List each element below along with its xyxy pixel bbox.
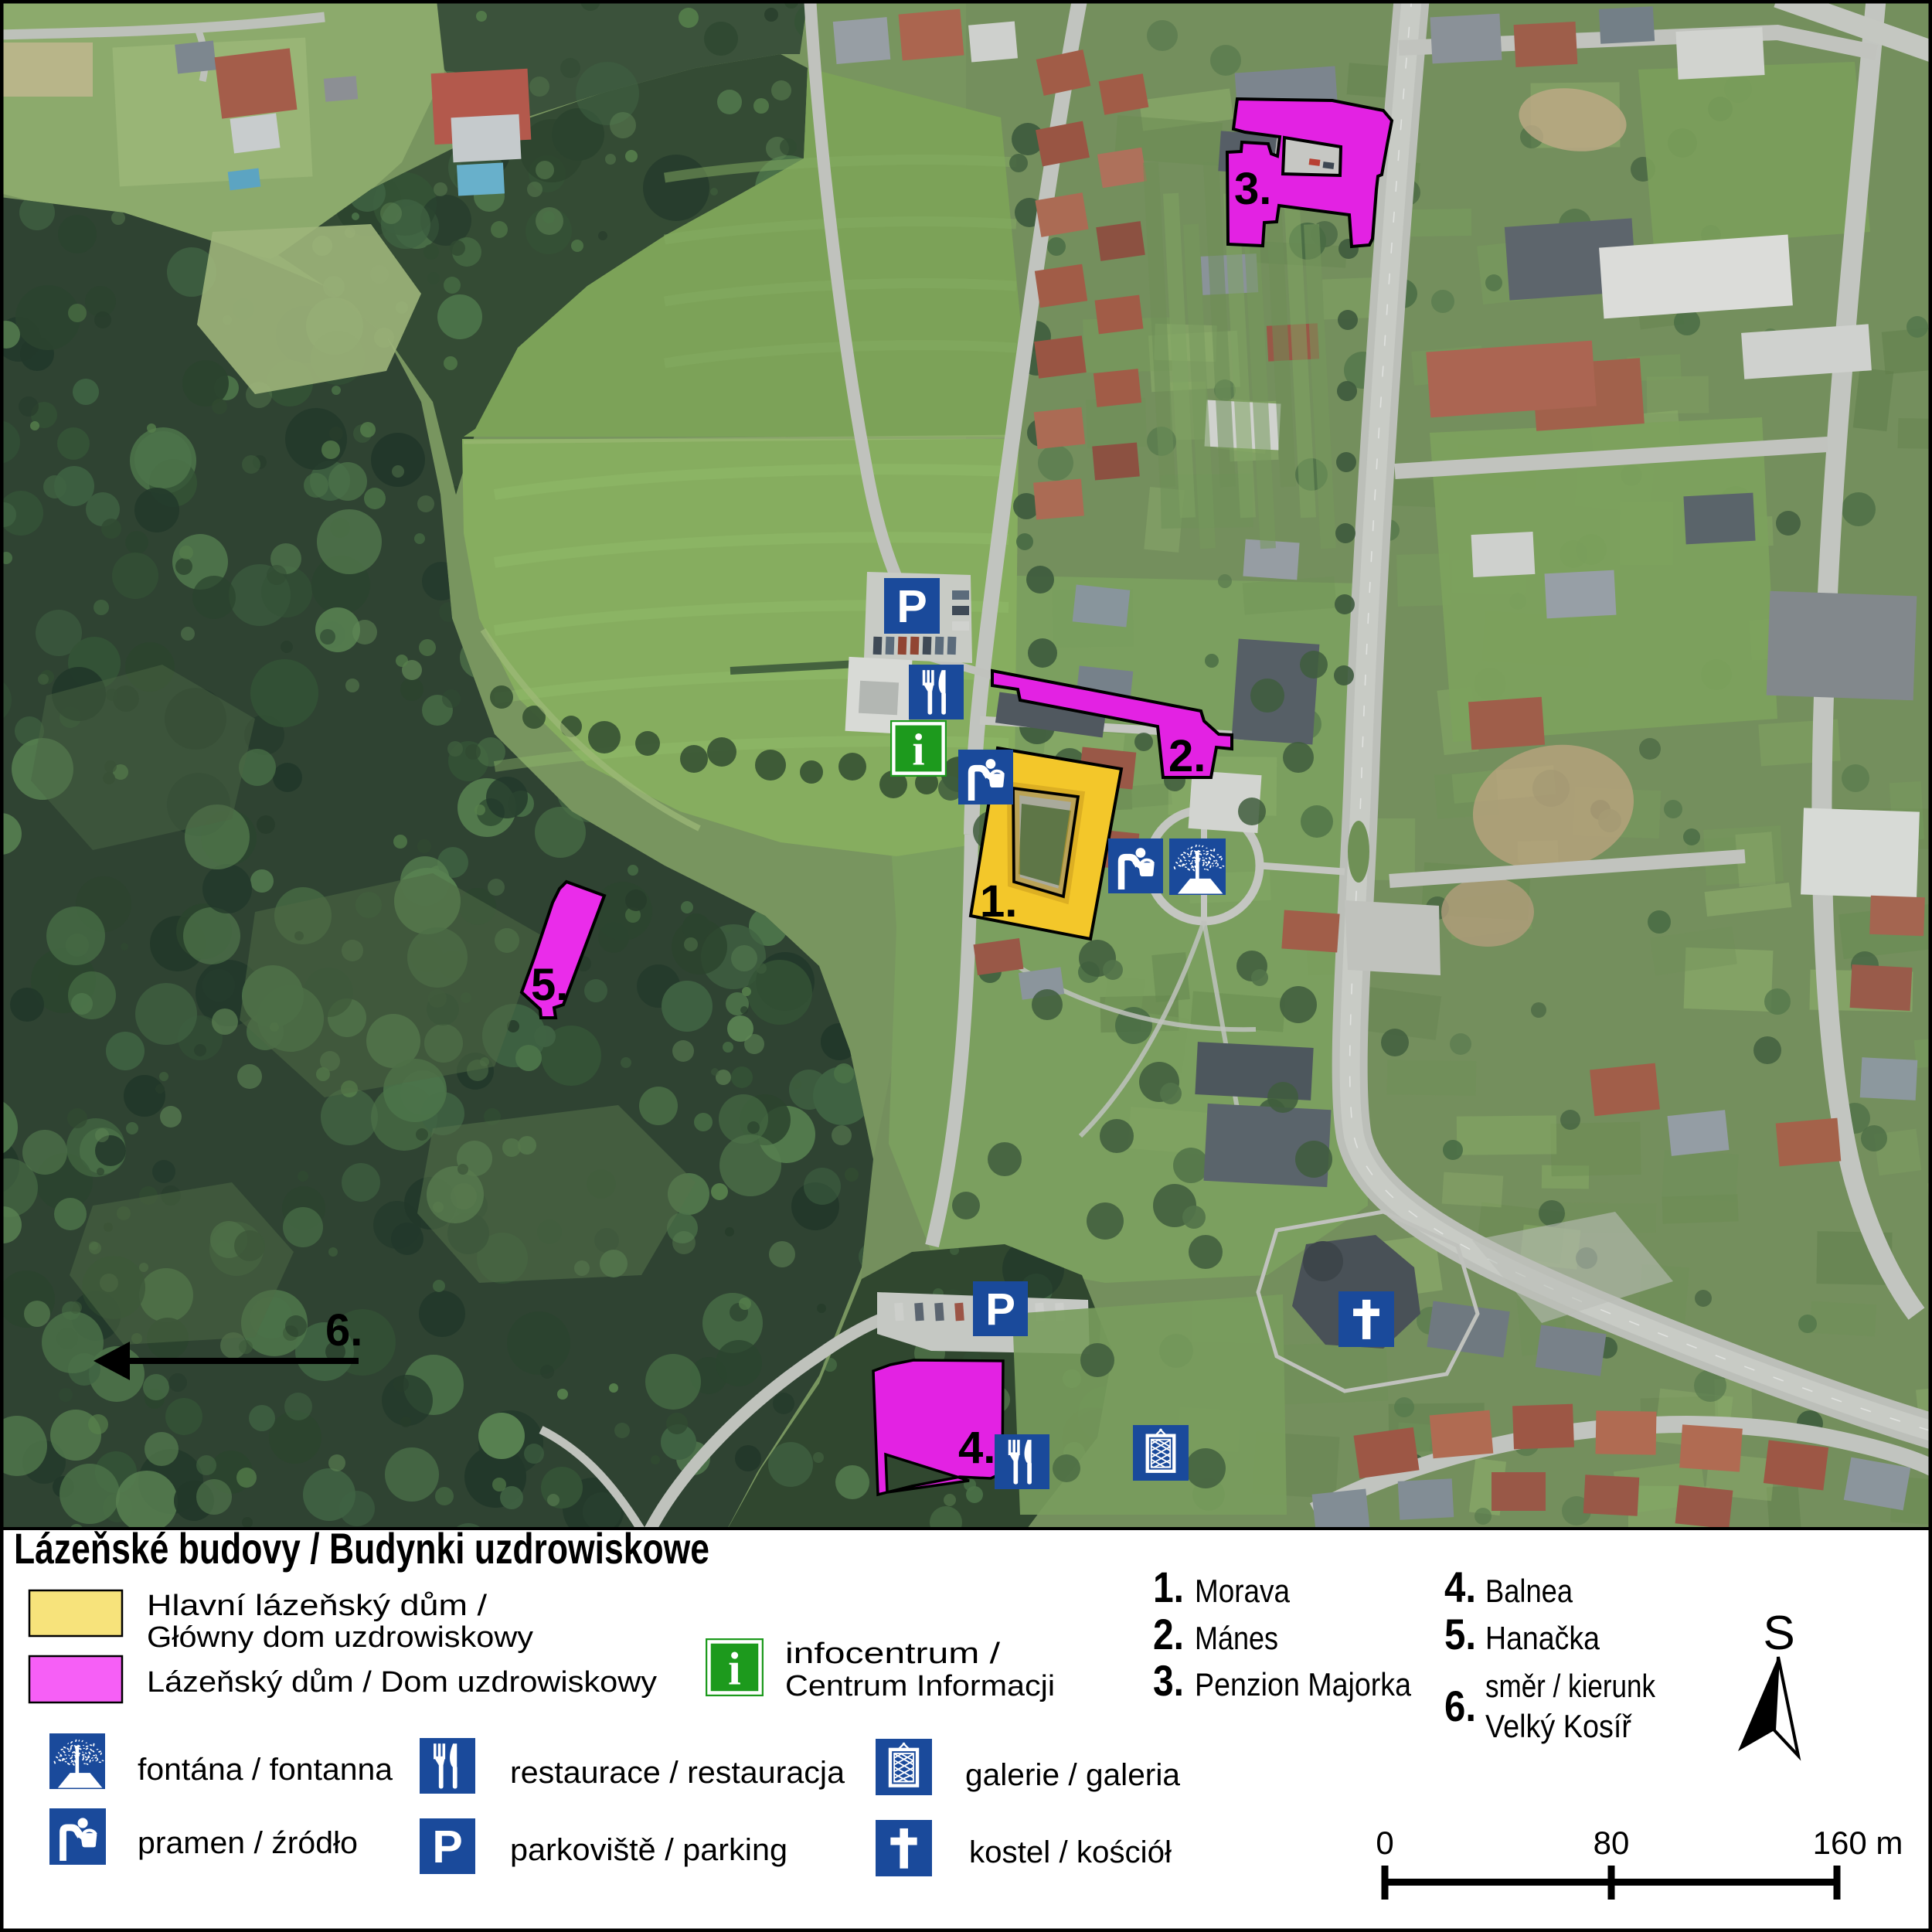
- svg-text:Centrum Informacji: Centrum Informacji: [785, 1670, 1055, 1702]
- svg-text:3.: 3.: [1153, 1656, 1184, 1705]
- svg-text:1.: 1.: [980, 876, 1017, 927]
- svg-text:4.: 4.: [958, 1423, 995, 1473]
- svg-text:parkoviště / parking: parkoviště / parking: [510, 1833, 787, 1867]
- svg-text:6.: 6.: [325, 1305, 362, 1355]
- svg-text:0: 0: [1376, 1825, 1393, 1861]
- svg-text:restaurace / restauracja: restaurace / restauracja: [510, 1756, 845, 1790]
- svg-text:Velký Kosíř: Velký Kosíř: [1485, 1708, 1632, 1744]
- svg-text:Penzion Majorka: Penzion Majorka: [1195, 1666, 1412, 1702]
- svg-text:4.: 4.: [1444, 1563, 1476, 1611]
- svg-text:Lázeňský dům / Dom uzdrowiskow: Lázeňský dům / Dom uzdrowiskowy: [147, 1666, 657, 1699]
- svg-text:5.: 5.: [531, 960, 568, 1010]
- svg-text:160 m: 160 m: [1813, 1825, 1903, 1861]
- svg-text:5.: 5.: [1444, 1610, 1476, 1658]
- svg-text:fontána / fontanna: fontána / fontanna: [138, 1753, 393, 1787]
- svg-text:Morava: Morava: [1195, 1573, 1291, 1609]
- svg-text:6.: 6.: [1444, 1682, 1476, 1730]
- svg-text:Lázeňské budovy / Budynki uzdr: Lázeňské budovy / Budynki uzdrowiskowe: [14, 1524, 709, 1573]
- svg-text:Hanačka: Hanačka: [1485, 1620, 1600, 1656]
- svg-text:Główny dom uzdrowiskowy: Główny dom uzdrowiskowy: [147, 1621, 533, 1654]
- svg-text:Mánes: Mánes: [1195, 1620, 1278, 1656]
- svg-text:směr / kierunk: směr / kierunk: [1485, 1668, 1656, 1704]
- svg-text:2.: 2.: [1153, 1610, 1184, 1658]
- svg-text:1.: 1.: [1153, 1563, 1184, 1611]
- svg-text:kostel / kościół: kostel / kościół: [969, 1835, 1172, 1869]
- svg-text:galerie / galeria: galerie / galeria: [965, 1758, 1181, 1792]
- svg-text:S: S: [1763, 1607, 1794, 1660]
- svg-text:Balnea: Balnea: [1485, 1573, 1573, 1609]
- svg-text:3.: 3.: [1234, 164, 1271, 214]
- svg-text:pramen / źródło: pramen / źródło: [138, 1826, 358, 1860]
- svg-text:Hlavní lázeňský dům /: Hlavní lázeňský dům /: [147, 1590, 488, 1622]
- svg-text:80: 80: [1594, 1825, 1630, 1861]
- svg-text:2.: 2.: [1168, 731, 1206, 781]
- svg-text:infocentrum /: infocentrum /: [785, 1638, 1001, 1670]
